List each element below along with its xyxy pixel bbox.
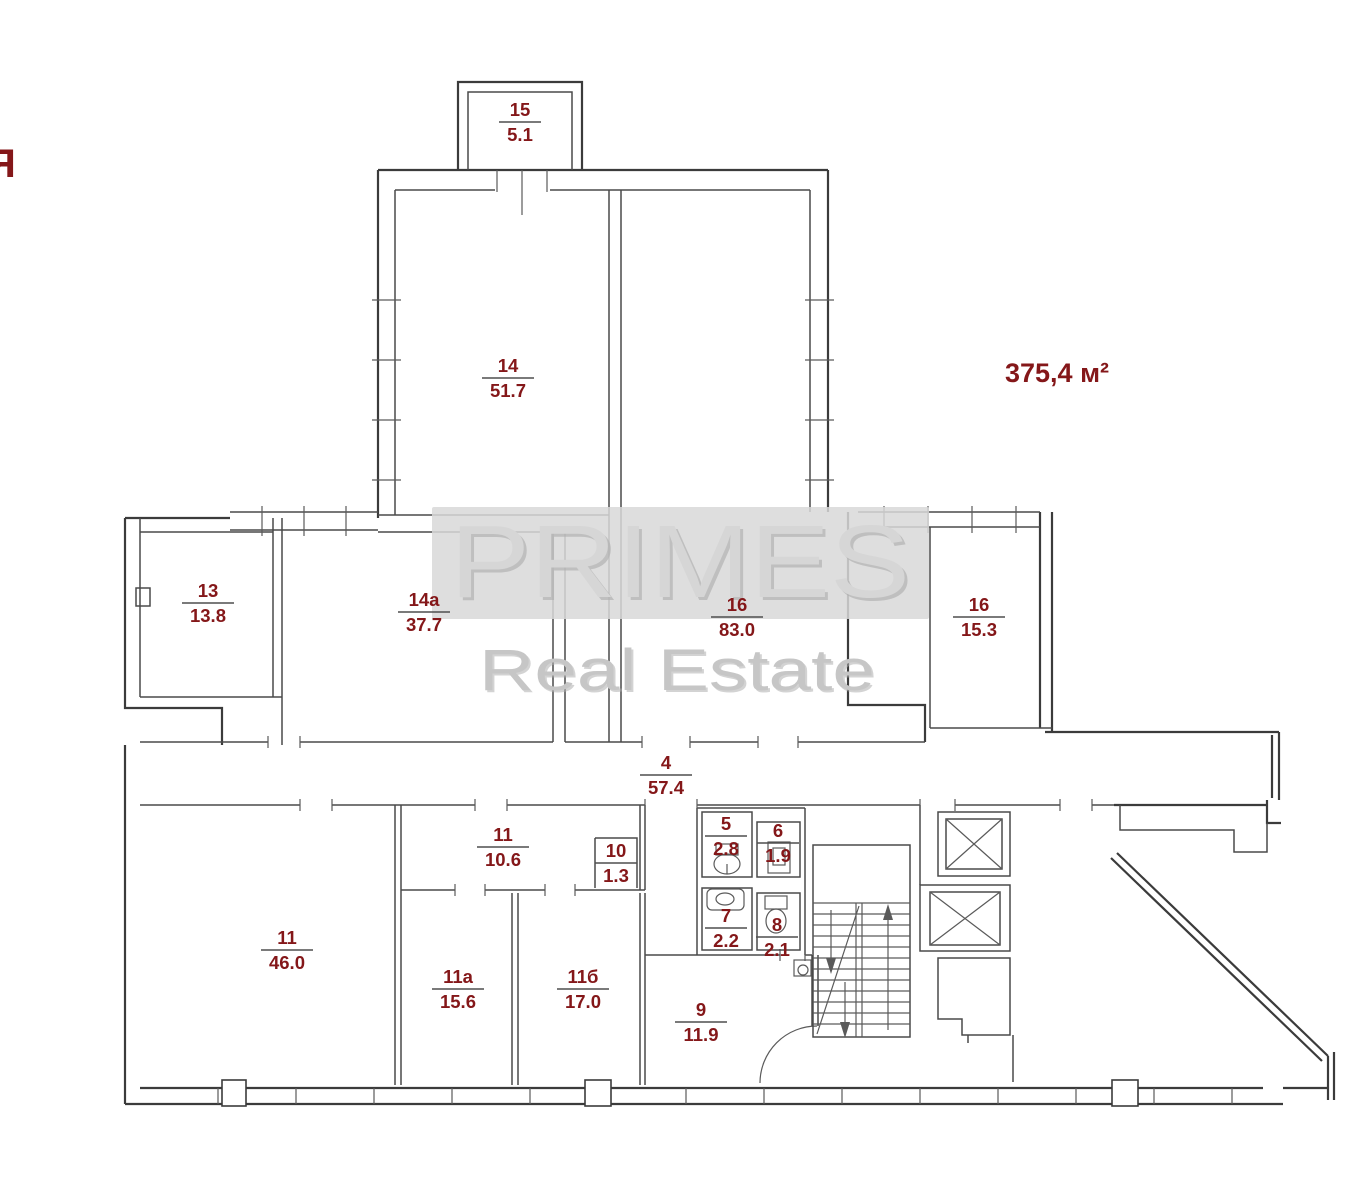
room-label-13: 1313.8 [182,580,234,626]
room-label-10: 101.3 [595,840,637,886]
room-area: 2.1 [764,939,790,960]
room-number: 14a [409,589,441,610]
room-area: 2.2 [713,930,739,951]
sink-icon [794,960,811,976]
room-number: 16 [727,594,748,615]
room-label-11: 1146.0 [261,927,313,973]
room-area: 15.3 [961,619,997,640]
room-label-7: 72.2 [705,905,747,951]
room-area: 1.9 [765,845,791,866]
room-area: 83.0 [719,619,755,640]
room-label-5: 52.8 [705,813,747,859]
staircase [813,845,910,1038]
room-label-14: 1451.7 [482,355,534,401]
room-area: 57.4 [648,777,685,798]
room-label-9: 911.9 [675,999,727,1045]
elevator-shafts [920,812,1010,1043]
room-area: 17.0 [565,991,601,1012]
door-swing-arc [760,1026,817,1083]
room-area: 11.9 [684,1024,719,1045]
arrow-down-icon [826,958,836,974]
wall-niche [136,588,150,606]
arrow-down-icon [840,1022,850,1038]
room-number: 7 [721,905,731,926]
room-label-4: 457.4 [640,752,692,798]
room-number: 8 [772,914,782,935]
service-shaft [938,958,1010,1043]
room-area: 15.6 [440,991,476,1012]
room-number: 9 [696,999,706,1020]
room-label-11a: 11a15.6 [432,966,484,1012]
watermark-logo: PRIMES [450,504,910,619]
watermark: PRIMES PRIMES Real Estate Real Estate [432,504,929,705]
room-number: 11б [568,966,599,987]
room-number: 5 [721,813,731,834]
stair-direction-arrows [826,904,893,1038]
room-area: 37.7 [406,614,442,635]
watermark-subtitle: Real Estate [479,638,875,703]
room-area: 10.6 [485,849,521,870]
arrow-up-icon [883,904,893,920]
room-number: 11a [443,966,474,987]
room-number: 13 [198,580,219,601]
room-number: 11 [277,927,297,948]
room-area: 1.3 [603,865,629,886]
floorplan-image: PRIMES PRIMES Real Estate Real Estate 15… [0,0,1364,1200]
room-area: 5.1 [507,124,533,145]
room-area: 51.7 [490,380,526,401]
room-label-15: 155.1 [499,99,541,145]
room-number: 11 [493,824,513,845]
room-label-11б: 11б17.0 [557,966,609,1012]
floor-plan-svg: PRIMES PRIMES Real Estate Real Estate 15… [0,0,1364,1200]
room-number: 10 [606,840,627,861]
room-area: 2.8 [713,838,739,859]
cropped-corner-letter: Я [0,142,16,186]
room-area: 13.8 [190,605,226,626]
elevator-shaft-icon [938,812,1010,876]
room-number: 16 [969,594,990,615]
room-number: 15 [510,99,531,120]
total-area-label: 375,4 м² [1005,358,1109,388]
room-area: 46.0 [269,952,305,973]
room-number: 14 [498,355,519,376]
room-number: 6 [773,820,783,841]
room-label-8: 82.1 [756,914,798,960]
room-label-16: 1615.3 [953,594,1005,640]
room-label-11: 1110.6 [477,824,529,870]
elevator-shaft-icon [920,885,1010,951]
room-label-6: 61.9 [757,820,799,866]
room-number: 4 [661,752,672,773]
